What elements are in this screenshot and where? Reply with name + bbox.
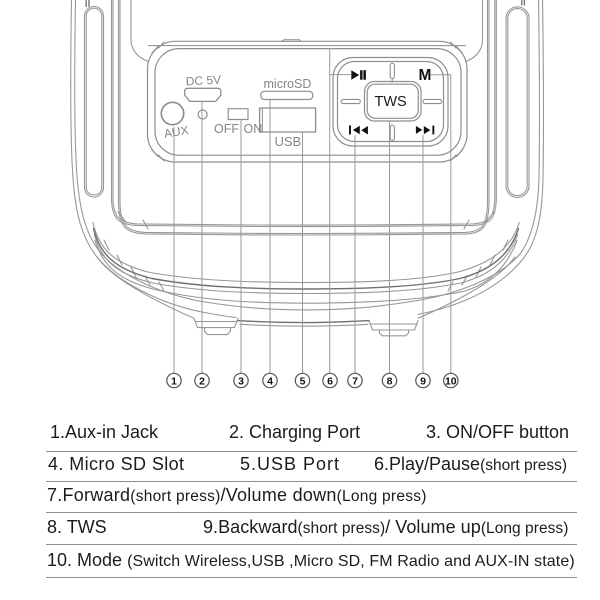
- svg-text:TWS: TWS: [375, 94, 407, 110]
- svg-text:USB: USB: [275, 134, 302, 149]
- svg-text:microSD: microSD: [264, 77, 312, 91]
- svg-text:1: 1: [171, 375, 177, 387]
- svg-text:8: 8: [387, 375, 393, 387]
- svg-text:6: 6: [327, 375, 333, 387]
- svg-text:3: 3: [238, 375, 244, 387]
- svg-text:M: M: [419, 67, 432, 84]
- svg-text:4: 4: [267, 375, 273, 387]
- svg-text:DC 5V: DC 5V: [185, 73, 221, 89]
- svg-text:OFF: OFF: [214, 122, 239, 136]
- svg-text:10: 10: [445, 375, 457, 387]
- svg-text:2: 2: [199, 375, 205, 387]
- svg-text:5: 5: [300, 375, 306, 387]
- svg-text:7: 7: [352, 375, 358, 387]
- svg-text:AUX: AUX: [163, 123, 190, 141]
- svg-text:9: 9: [420, 375, 426, 387]
